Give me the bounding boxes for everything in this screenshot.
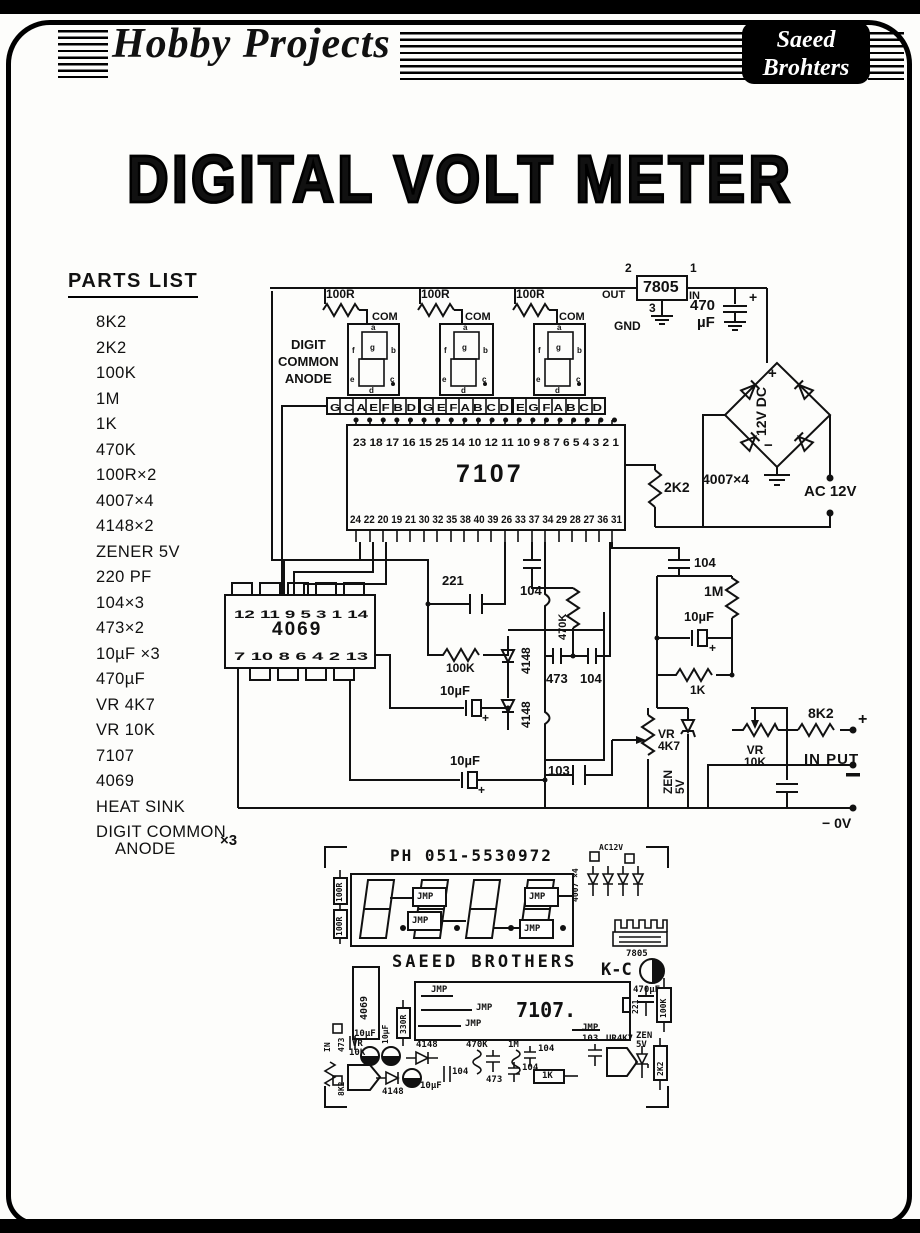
- jumper-label: JMP: [582, 1024, 598, 1033]
- resistor-1k-label: 1K: [690, 684, 705, 696]
- display1-pin-letters: G C A E F B D: [330, 403, 416, 414]
- ic7107-top-pins: 23 18 17 16 15 25 14 10 12 11 10 9 8 7 6…: [353, 437, 619, 449]
- pcb-10k-label: 10K: [349, 1049, 365, 1058]
- cap-473-label: 473: [546, 672, 568, 686]
- magazine-title: Hobby Projects: [112, 20, 391, 68]
- pcb-kc-label: K-C: [601, 962, 632, 979]
- jumper-label: JMP: [412, 917, 428, 926]
- reg-name: 7805: [643, 280, 679, 296]
- pcb-2k2-label: 2K2: [657, 1062, 665, 1076]
- pcb-10uf-label: 10µF: [382, 1025, 390, 1044]
- cap-470uf-polarity: +: [749, 290, 757, 304]
- jumper-label: JMP: [529, 893, 545, 902]
- seg-c: c: [390, 375, 395, 384]
- cap-104-label: 104: [520, 584, 542, 598]
- seg-e: e: [536, 375, 541, 384]
- pcb-4148-label: 4148: [416, 1041, 438, 1050]
- ic7107-bottom-pins: 24 22 20 19 21 30 32 35 38 40 39 26 33 3…: [350, 514, 622, 526]
- seg-d: d: [369, 386, 374, 395]
- com-label: COM: [372, 312, 398, 323]
- cap-10uf-label: 10µF: [684, 610, 714, 624]
- pcb-layout: PH 051-5530972 SAEED BROTHERS JMP JMP JM…: [320, 840, 690, 1115]
- pcb-104-label: 104: [452, 1068, 468, 1077]
- cap-470uf-value: 470: [690, 298, 715, 313]
- seg-c: c: [482, 375, 487, 384]
- seg-a: a: [463, 323, 468, 332]
- pcb-in-label: IN: [324, 1042, 332, 1052]
- pcb-100r-label: 100R: [336, 883, 344, 902]
- pcb-7805-label: 7805: [626, 950, 648, 959]
- seg-b: b: [391, 346, 396, 355]
- circuit-schematic: 23 18 17 16 15 25 14 10 12 11 10 9 8 7 6…: [220, 260, 910, 845]
- resistor-100k-label: 100K: [446, 662, 475, 674]
- pcb-470uf-label: 470µF: [633, 986, 660, 995]
- input-plus-terminal: +: [858, 712, 867, 728]
- seg-d: d: [555, 386, 560, 395]
- resistor-100r-label: 100R: [421, 288, 450, 300]
- plus-mark: +: [482, 712, 489, 724]
- pcb-ac12v-label: AC12V: [599, 844, 623, 852]
- pcb-1k-label: 1K: [542, 1072, 553, 1081]
- pcb-vr4k7-label: UR4K7: [606, 1035, 633, 1044]
- bridge-minus: −: [764, 438, 773, 453]
- pcb-7107-label: 7107.: [516, 1000, 576, 1020]
- ac-12v-label: AC 12V: [804, 484, 857, 499]
- pcb-brand: SAEED BROTHERS: [392, 954, 577, 971]
- zener-5v-label: ZEN 5V: [662, 770, 686, 794]
- seg-b: b: [577, 346, 582, 355]
- jumper-label: JMP: [431, 986, 447, 995]
- vr-4k7-label: VR 4K7: [658, 728, 680, 752]
- com-label: COM: [559, 312, 585, 323]
- reg-pin2: 2: [625, 262, 632, 274]
- plus-mark: +: [709, 642, 716, 654]
- seg-e: e: [442, 375, 447, 384]
- bridge-4007-label: 4007×4: [702, 472, 749, 486]
- cap-10uf-label: 10µF: [440, 684, 470, 698]
- top-scan-bar: [0, 0, 920, 14]
- seg-f: f: [352, 346, 355, 355]
- ic7107-name: 7107: [456, 462, 524, 487]
- ic4069-name: 4069: [272, 620, 322, 639]
- digit-common-anode-label: DIGIT COMMON ANODE: [278, 336, 339, 387]
- header-lines-right: [868, 32, 904, 80]
- header-lines-left: [58, 30, 108, 78]
- header-lines-middle: [400, 32, 748, 80]
- seg-g: g: [462, 343, 467, 352]
- pcb-8k2-label: 8K2: [338, 1082, 346, 1096]
- reg-pin1: 1: [690, 262, 697, 274]
- seg-g: g: [556, 343, 561, 352]
- page-title: DIGITAL VOLT METER: [0, 141, 920, 218]
- plus-mark: +: [478, 784, 485, 796]
- publisher-badge: Saeed Brohters: [742, 22, 870, 84]
- seg-a: a: [371, 323, 376, 332]
- pcb-104-label: 104: [522, 1064, 538, 1073]
- seg-a: a: [557, 323, 562, 332]
- pcb-graphics: [320, 840, 690, 1115]
- pcb-4069-label: 4069: [360, 996, 370, 1020]
- pcb-103-label: 103: [582, 1035, 598, 1044]
- jumper-label: JMP: [417, 893, 433, 902]
- bridge-plus: +: [768, 366, 777, 381]
- seg-e: e: [350, 375, 355, 384]
- pcb-4007-label: 4007 ×4: [572, 868, 580, 902]
- resistor-1m-label: 1M: [704, 584, 723, 598]
- ic4069-bottom-pins: 7 10 8 6 4 2 13: [234, 651, 368, 663]
- parts-list-heading: PARTS LIST: [68, 270, 198, 298]
- publisher-badge-line2: Brohters: [742, 54, 870, 82]
- resistor-100r-label: 100R: [516, 288, 545, 300]
- cap-103-label: 103: [548, 764, 570, 778]
- display2-pin-letters: G E F A B C D: [423, 403, 509, 414]
- pcb-100k-label: 100K: [660, 999, 668, 1018]
- cap-104-label: 104: [694, 556, 716, 570]
- pcb-1m-label: 1M: [508, 1041, 519, 1050]
- display3-pin-letters: E G F A B C D: [516, 403, 602, 414]
- diode-4148-label: 4148: [520, 647, 532, 674]
- seg-f: f: [444, 346, 447, 355]
- cap-470uf-unit: µF: [697, 315, 715, 330]
- pcb-100r-label: 100R: [336, 917, 344, 936]
- pcb-470k-label: 470K: [466, 1041, 488, 1050]
- pcb-title: PH 051-5530972: [390, 848, 553, 864]
- resistor-8k2-label: 8K2: [808, 706, 834, 720]
- pcb-104-label: 104: [538, 1045, 554, 1054]
- resistor-100r-label: 100R: [326, 288, 355, 300]
- seg-b: b: [483, 346, 488, 355]
- jumper-label: JMP: [465, 1020, 481, 1029]
- resistor-470k-label: 470K: [558, 614, 569, 640]
- resistor-2k2-label: 2K2: [664, 480, 690, 494]
- pcb-330r-label: 330R: [400, 1015, 408, 1034]
- seg-g: g: [370, 343, 375, 352]
- reg-pin3: 3: [649, 302, 656, 314]
- pcb-473-label: 473: [338, 1038, 346, 1052]
- reg-gnd-label: GND: [614, 320, 641, 332]
- pcb-10uf-label: 10µF: [420, 1082, 442, 1091]
- pcb-zener-label: ZEN 5V: [636, 1032, 652, 1050]
- com-label: COM: [465, 312, 491, 323]
- seg-f: f: [538, 346, 541, 355]
- pcb-221-label: 221: [632, 1000, 640, 1014]
- pcb-473-label: 473: [486, 1076, 502, 1085]
- publisher-badge-line1: Saeed: [742, 26, 870, 54]
- seg-d: d: [461, 386, 466, 395]
- cap-221-label: 221: [442, 574, 464, 588]
- reg-out-label: OUT: [602, 290, 625, 301]
- jumper-label: JMP: [524, 925, 540, 934]
- cap-10uf-label: 10µF: [450, 754, 480, 768]
- bridge-12vdc-label: 12V DC: [754, 387, 768, 436]
- pcb-10uf-label: 10µF: [354, 1030, 376, 1039]
- input-label: IN PUT: [804, 752, 859, 767]
- jumper-label: JMP: [476, 1004, 492, 1013]
- magazine-page: Hobby Projects Saeed Brohters DIGITAL VO…: [0, 0, 920, 1233]
- diode-4148-label: 4148: [520, 701, 532, 728]
- pcb-4148-label: 4148: [382, 1088, 404, 1097]
- seg-c: c: [576, 375, 581, 384]
- vr-10k-label: VR 10K: [744, 744, 766, 768]
- zero-volt-label: − 0V: [822, 816, 851, 830]
- cap-104-label: 104: [580, 672, 602, 686]
